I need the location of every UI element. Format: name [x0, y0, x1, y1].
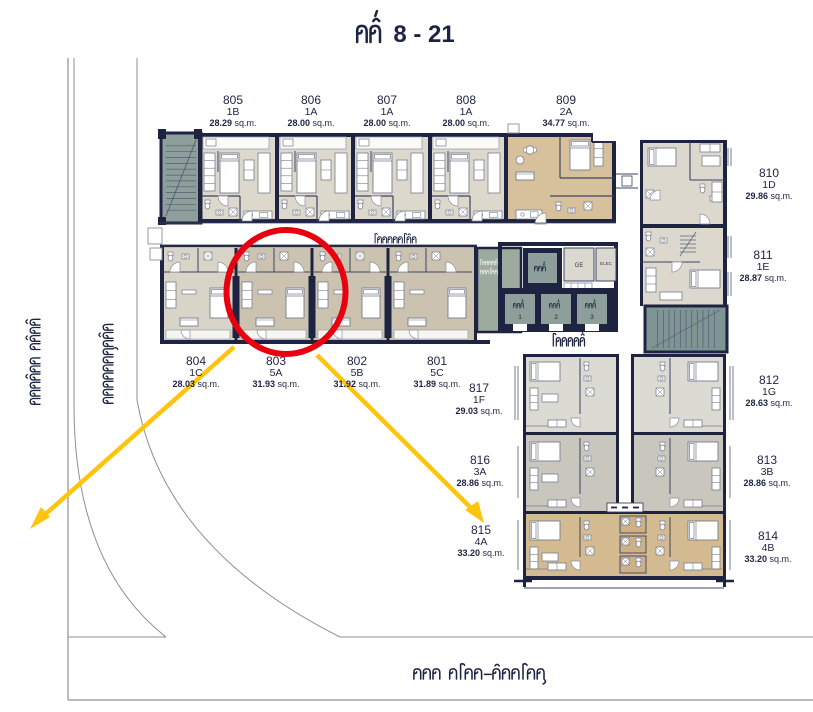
svg-text:807: 807: [377, 93, 397, 107]
svg-text:5B: 5B: [351, 367, 364, 379]
svg-text:809: 809: [556, 93, 576, 107]
svg-text:1E: 1E: [757, 261, 770, 273]
svg-text:28.86 sq.m.: 28.86 sq.m.: [743, 478, 790, 488]
svg-text:28.00 sq.m.: 28.00 sq.m.: [363, 118, 410, 128]
svg-text:813: 813: [757, 453, 777, 467]
svg-text:28.29 sq.m.: 28.29 sq.m.: [209, 118, 256, 128]
svg-text:33.20 sq.m.: 33.20 sq.m.: [744, 554, 791, 564]
svg-text:1B: 1B: [227, 106, 240, 118]
svg-text:1F: 1F: [473, 394, 485, 406]
svg-text:ELEC: ELEC: [600, 261, 613, 266]
svg-text:804: 804: [186, 354, 206, 368]
svg-text:29.03 sq.m.: 29.03 sq.m.: [455, 406, 502, 416]
svg-text:810: 810: [759, 166, 779, 180]
svg-text:1A: 1A: [460, 106, 473, 118]
svg-text:1A: 1A: [305, 106, 318, 118]
svg-text:28.87 sq.m.: 28.87 sq.m.: [739, 273, 786, 283]
svg-text:28.63 sq.m.: 28.63 sq.m.: [745, 398, 792, 408]
svg-text:816: 816: [470, 453, 490, 467]
svg-text:1D: 1D: [762, 179, 776, 191]
svg-text:28.03 sq.m.: 28.03 sq.m.: [172, 379, 219, 389]
svg-text:28.86 sq.m.: 28.86 sq.m.: [456, 478, 503, 488]
svg-text:3B: 3B: [761, 466, 774, 478]
svg-text:8 - 21: 8 - 21: [393, 21, 454, 48]
svg-text:3: 3: [590, 314, 594, 321]
svg-text:803: 803: [266, 354, 286, 368]
svg-text:805: 805: [223, 93, 243, 107]
svg-text:5A: 5A: [270, 367, 283, 379]
svg-text:31.92 sq.m.: 31.92 sq.m.: [333, 379, 380, 389]
svg-text:3A: 3A: [474, 466, 487, 478]
svg-text:4A: 4A: [475, 536, 488, 548]
svg-text:34.77 sq.m.: 34.77 sq.m.: [542, 118, 589, 128]
svg-text:GE: GE: [575, 263, 584, 269]
svg-text:2: 2: [554, 314, 558, 321]
svg-text:817: 817: [469, 381, 489, 395]
svg-text:2A: 2A: [560, 106, 573, 118]
svg-text:814: 814: [758, 529, 778, 543]
svg-text:4B: 4B: [762, 542, 775, 554]
svg-text:28.00 sq.m.: 28.00 sq.m.: [442, 118, 489, 128]
svg-text:33.20 sq.m.: 33.20 sq.m.: [457, 548, 504, 558]
svg-text:1: 1: [518, 314, 522, 321]
svg-text:802: 802: [347, 354, 367, 368]
svg-text:815: 815: [471, 523, 491, 537]
svg-text:31.93 sq.m.: 31.93 sq.m.: [252, 379, 299, 389]
svg-text:811: 811: [753, 248, 772, 262]
svg-text:31.89 sq.m.: 31.89 sq.m.: [413, 379, 460, 389]
svg-text:1C: 1C: [189, 367, 203, 379]
svg-text:812: 812: [759, 373, 779, 387]
svg-text:806: 806: [301, 93, 321, 107]
svg-text:801: 801: [427, 354, 447, 368]
svg-text:1G: 1G: [762, 386, 776, 398]
svg-text:1A: 1A: [381, 106, 394, 118]
svg-text:5C: 5C: [430, 367, 444, 379]
svg-text:29.86 sq.m.: 29.86 sq.m.: [745, 191, 792, 201]
svg-text:808: 808: [456, 93, 476, 107]
svg-text:28.00 sq.m.: 28.00 sq.m.: [287, 118, 334, 128]
